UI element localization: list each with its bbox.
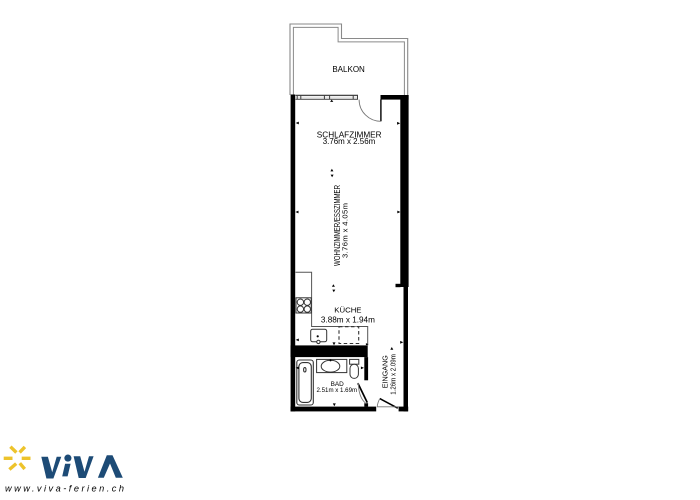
svg-text:EINGANG: EINGANG <box>380 355 389 388</box>
svg-text:1.26m x 2.09m: 1.26m x 2.09m <box>391 354 398 395</box>
svg-text:KÜCHE: KÜCHE <box>334 306 361 315</box>
svg-text:www.viva-ferien.ch: www.viva-ferien.ch <box>5 484 124 494</box>
svg-text:3.76m x 2.56m: 3.76m x 2.56m <box>323 137 376 146</box>
svg-text:2.51m x 1.69m: 2.51m x 1.69m <box>317 387 358 394</box>
svg-text:BALKON: BALKON <box>332 65 365 74</box>
svg-text:3.88m x 1.94m: 3.88m x 1.94m <box>321 315 375 324</box>
svg-text:3.76m x 4.05m: 3.76m x 4.05m <box>340 203 349 258</box>
